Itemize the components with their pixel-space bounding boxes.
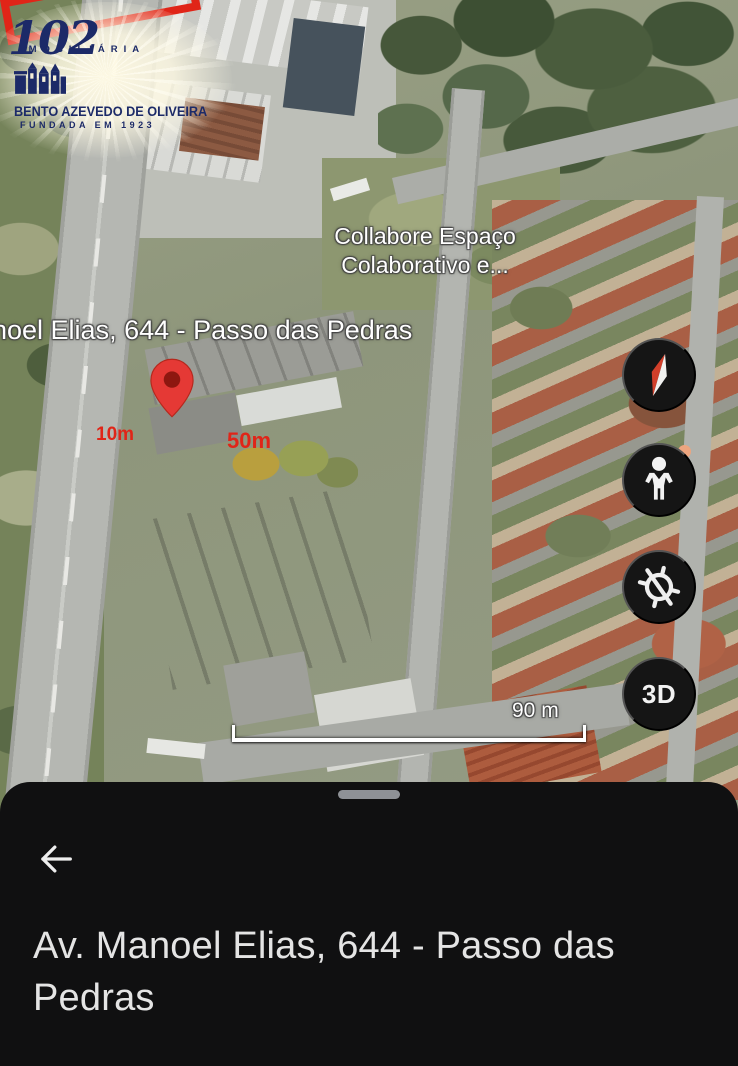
compass-off-icon xyxy=(636,564,682,610)
logo-company-name: BENTO AZEVEDO DE OLIVEIRA xyxy=(14,104,207,119)
compass-needle-icon xyxy=(646,352,672,398)
pegman-icon xyxy=(642,456,676,504)
map-roof xyxy=(283,18,365,116)
street-address-label[interactable]: noel Elias, 644 - Passo das Pedras xyxy=(0,315,412,346)
compass-button[interactable] xyxy=(622,338,696,412)
plot-length-dimension: 50m xyxy=(227,428,271,454)
logo-anniversary-number: 102 xyxy=(8,18,98,58)
satellite-map-canvas[interactable]: IMOBILIÁRIA xyxy=(0,0,738,830)
back-button[interactable] xyxy=(34,838,78,882)
sheet-drag-handle[interactable] xyxy=(338,790,400,799)
agency-watermark-logo: IMOBILIÁRIA xyxy=(6,28,206,132)
place-bottom-sheet: Av. Manoel Elias, 644 - Passo das Pedras xyxy=(0,782,738,1066)
place-title: Av. Manoel Elias, 644 - Passo das Pedras xyxy=(33,920,681,1024)
map-marker-pin[interactable] xyxy=(149,357,195,419)
plot-width-dimension: 10m xyxy=(96,424,134,446)
app-screen: IMOBILIÁRIA xyxy=(0,0,738,1066)
logo-founded-text: FUNDADA EM 1923 xyxy=(20,120,155,130)
back-arrow-icon xyxy=(37,840,75,881)
scale-bar xyxy=(232,725,586,742)
poi-label-collabore[interactable]: Collabore Espaço Colaborativo e... xyxy=(306,222,544,280)
3d-view-button[interactable]: 3D xyxy=(622,657,696,731)
street-view-pegman-button[interactable] xyxy=(622,443,696,517)
scale-bar-label: 90 m xyxy=(512,699,559,723)
compass-lock-off-button[interactable] xyxy=(622,550,696,624)
3d-button-label: 3D xyxy=(642,679,676,710)
